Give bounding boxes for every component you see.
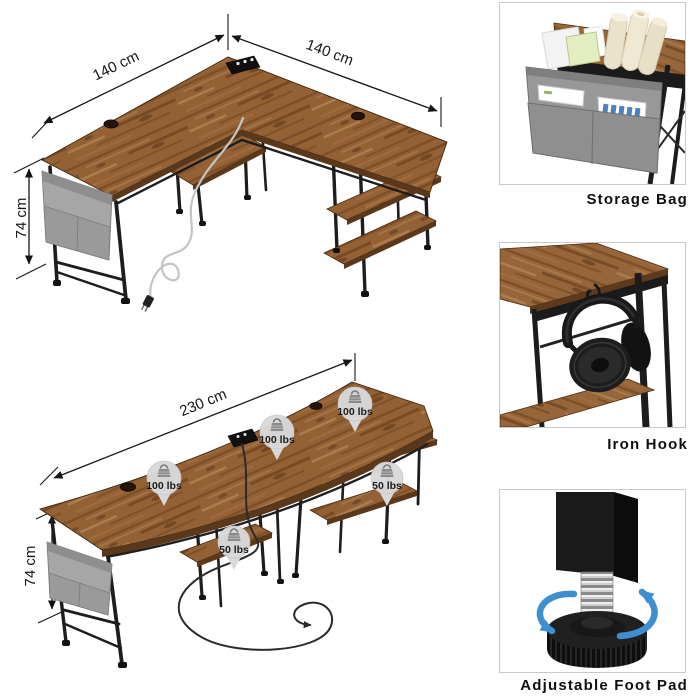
feature-panel-iron-hook [499, 242, 686, 428]
headphones-on-hook-icon [500, 243, 685, 427]
weight-badge-label: 50 lbs [372, 480, 402, 492]
storage-bag-icon [500, 3, 685, 184]
cable-grommet [104, 120, 118, 128]
foot-pad [547, 611, 647, 668]
cable-grommet [352, 112, 365, 120]
feature-label-storage-bag: Storage Bag [499, 191, 688, 208]
dimension-label-width-230: 230 cm [177, 386, 229, 421]
weight-badge-label: 100 lbs [259, 434, 295, 446]
dimension-height-top-desk: 74 cm [13, 158, 46, 279]
feature-panel-column: Storage Bag [499, 0, 688, 700]
desk-leg [556, 492, 614, 576]
weight-badge-label: 100 lbs [337, 406, 373, 418]
cable-grommet [121, 483, 136, 491]
feature-label-adjustable-foot-pad: Adjustable Foot Pad [499, 677, 688, 694]
power-plug [140, 295, 155, 313]
weight-badge: 50 lbs [218, 526, 250, 570]
feature-label-iron-hook: Iron Hook [499, 436, 688, 453]
l-desk-diagram: 140 cm 140 cm 74 cm [0, 0, 495, 350]
cable-grommet [310, 403, 322, 410]
adjustable-foot-pad-icon [500, 490, 685, 672]
dimension-label-height-top: 74 cm [13, 198, 30, 239]
weight-badge-label: 100 lbs [146, 480, 182, 492]
dimension-label-height-bottom: 74 cm [22, 546, 39, 587]
feature-panel-adjustable-foot-pad [499, 489, 686, 673]
long-desk-diagram: 230 cm 74 cm [0, 352, 495, 700]
weight-badge-label: 50 lbs [219, 544, 249, 556]
feature-panel-storage-bag [499, 2, 686, 185]
product-infographic-page: 140 cm 140 cm 74 cm [0, 0, 700, 700]
